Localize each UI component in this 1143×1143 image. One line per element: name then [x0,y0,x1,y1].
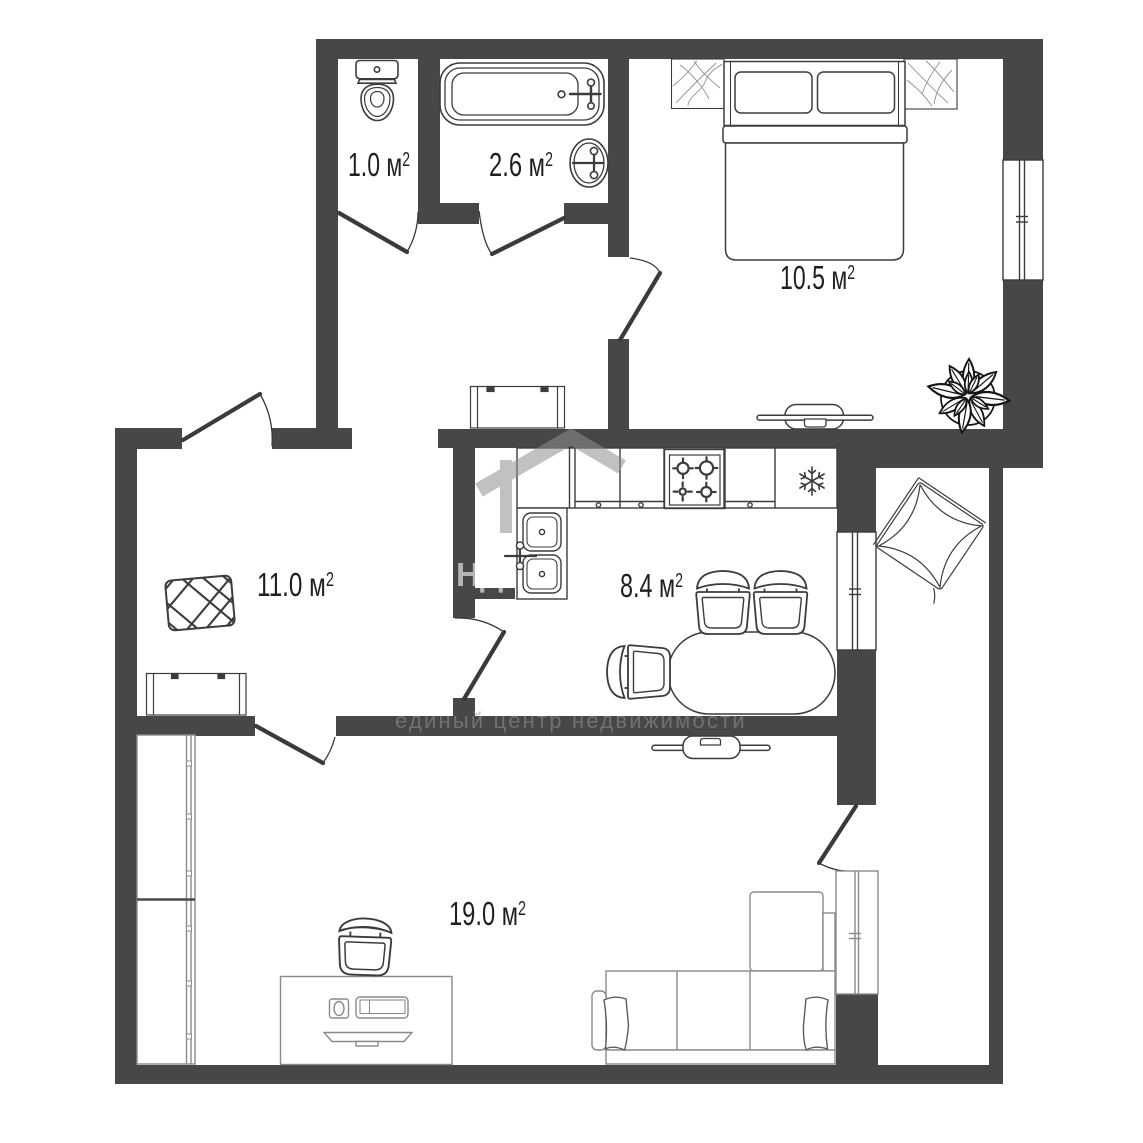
svg-text:1.0 м2: 1.0 м2 [348,146,410,183]
svg-text:единый центр недвижимости: единый центр недвижимости [395,708,747,733]
svg-text:8.4 м2: 8.4 м2 [620,567,683,604]
svg-text:2.6 м2: 2.6 м2 [489,146,553,183]
svg-text:19.0 м2: 19.0 м2 [449,895,526,932]
svg-text:НД: НД [456,556,503,593]
svg-text:10.5 м2: 10.5 м2 [780,259,855,296]
svg-text:11.0 м2: 11.0 м2 [257,566,334,603]
